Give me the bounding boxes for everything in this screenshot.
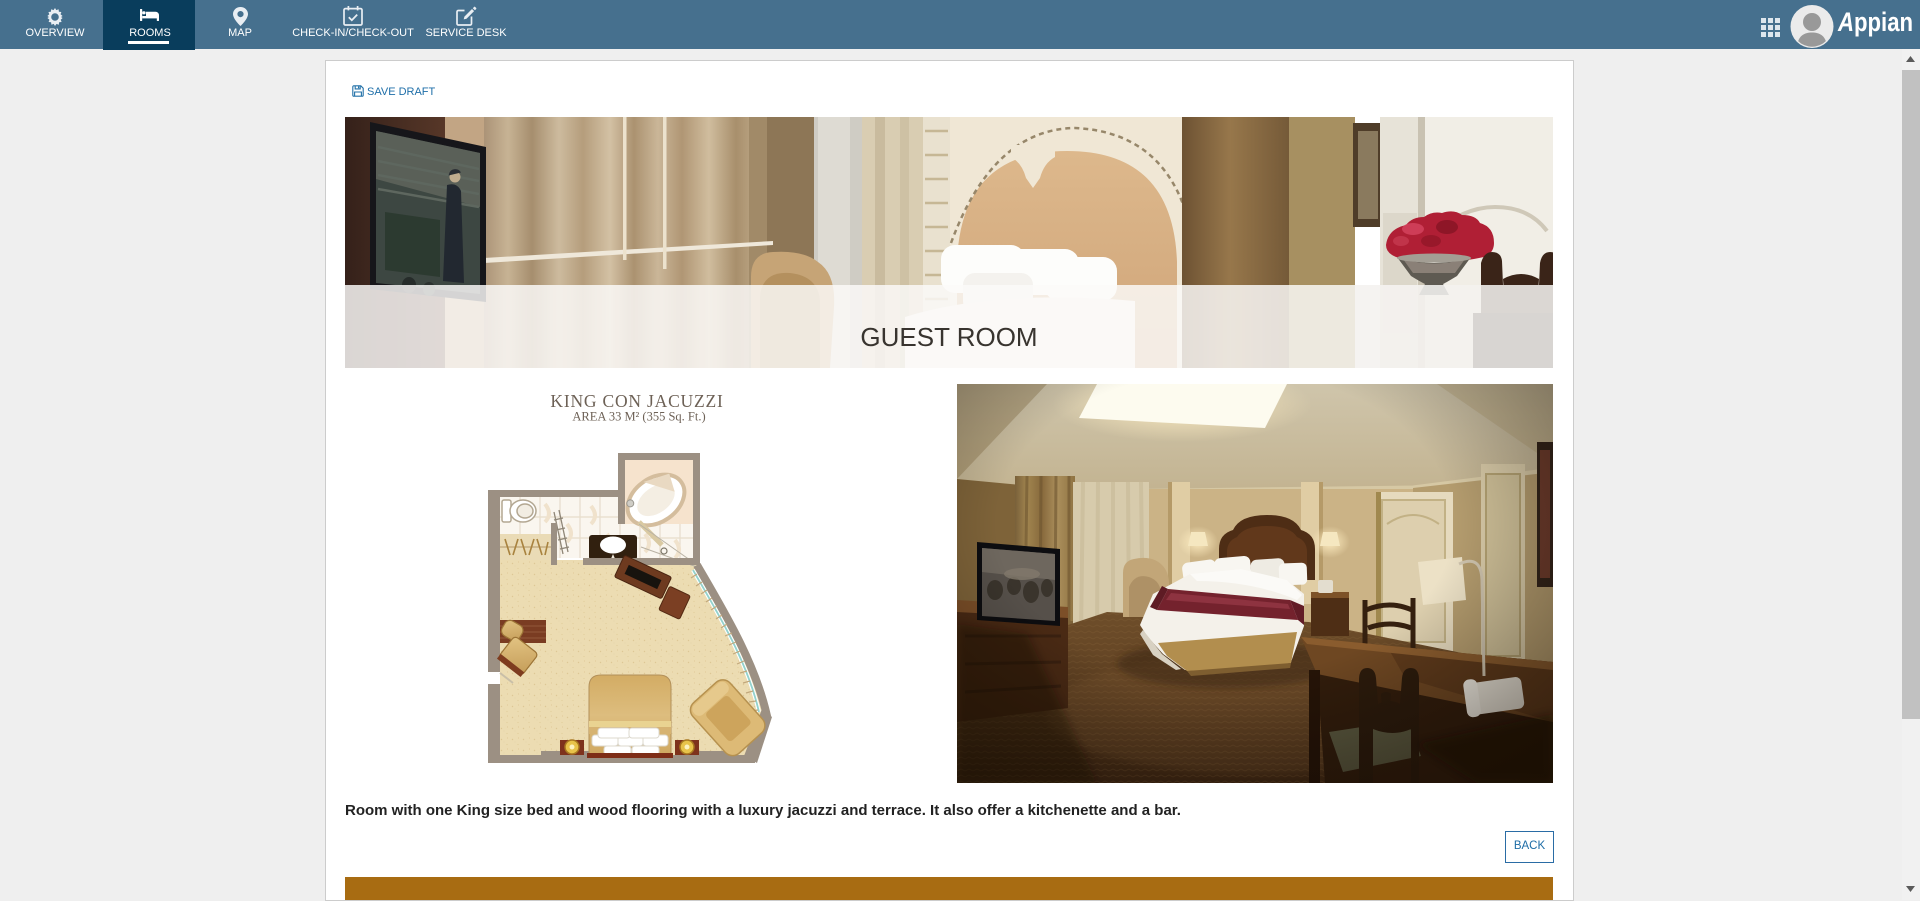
- svg-text:AREA 33 M² (355 Sq. Ft.): AREA 33 M² (355 Sq. Ft.): [572, 410, 705, 424]
- svg-text:KING CON JACUZZI: KING CON JACUZZI: [550, 391, 723, 411]
